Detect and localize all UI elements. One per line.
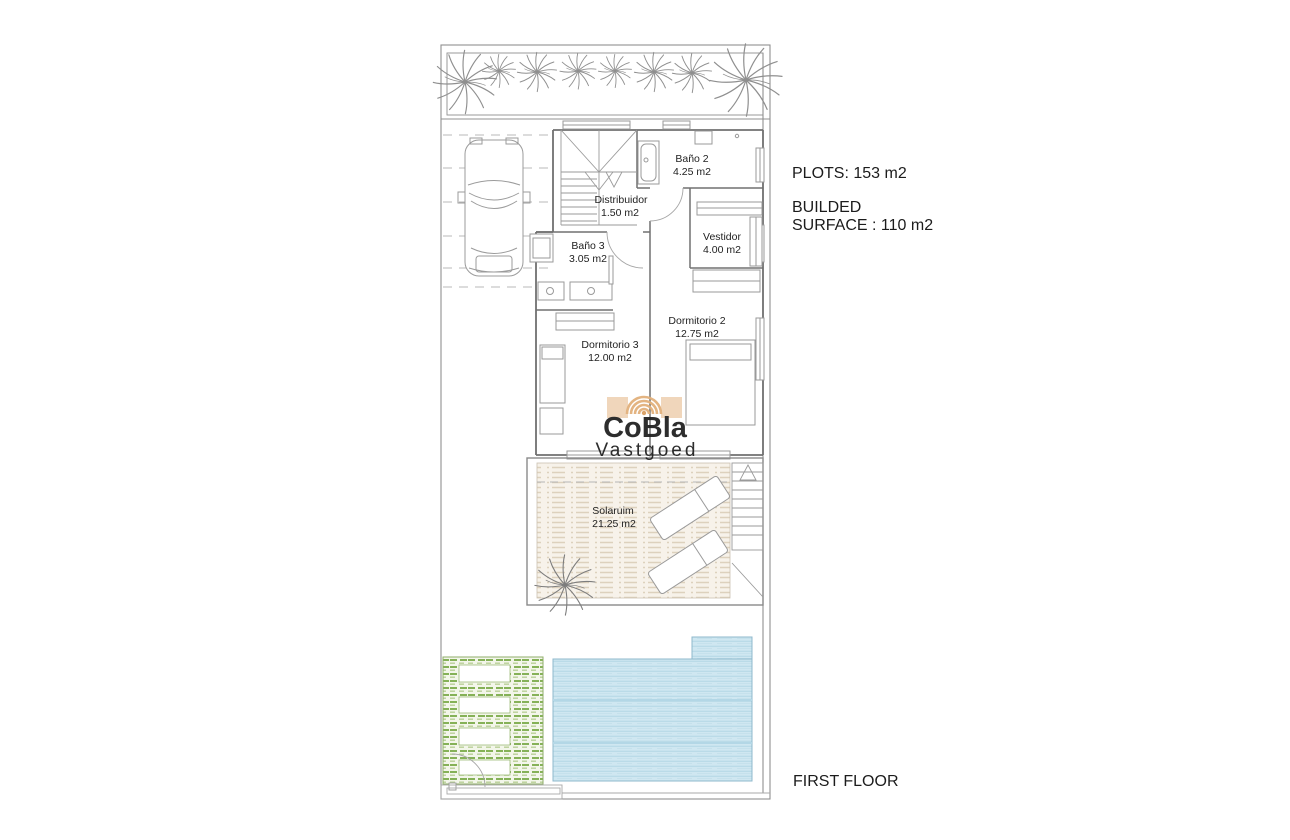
surface-label: SURFACE : 110 m2 <box>792 217 933 234</box>
stair-direction-arrow <box>606 172 622 187</box>
palm-tree-icon <box>433 50 496 113</box>
room-label-bano3: Baño 3 <box>571 240 604 252</box>
garden <box>443 657 543 790</box>
palm-tree-icon <box>517 52 556 91</box>
wood-deck <box>537 463 730 598</box>
door-arc <box>650 188 683 221</box>
sidewalk <box>441 785 770 799</box>
logo-tagline-text: Vastgoed <box>596 440 699 461</box>
car-top-view <box>458 138 530 276</box>
planter <box>459 728 510 745</box>
room-area-bano3: 3.05 m2 <box>569 253 607 265</box>
annotations: PLOTS: 153 m2 BUILDED SURFACE : 110 m2 F… <box>792 165 933 790</box>
exterior-stairs <box>732 463 763 597</box>
room-label-dormitorio2: Dormitorio 2 <box>668 315 725 327</box>
planter <box>459 665 510 682</box>
room-area-dormitorio2: 12.75 m2 <box>675 328 719 340</box>
room-label-vestidor: Vestidor <box>703 231 741 243</box>
palm-tree-icon <box>560 53 596 89</box>
palm-tree-icon <box>482 54 515 87</box>
room-area-bano2: 4.25 m2 <box>673 166 711 178</box>
floor-title: FIRST FLOOR <box>793 773 899 790</box>
solarium-terrace <box>527 458 763 615</box>
palm-tree-icon <box>710 44 782 116</box>
room-label-solarium: Solaruim <box>592 505 634 517</box>
swimming-pool <box>553 637 752 781</box>
builded-label: BUILDED <box>792 199 861 216</box>
palm-tree-icon <box>672 53 711 92</box>
floor-plan-drawing: Baño 2 4.25 m2 Distribuidor 1.50 m2 Vest… <box>0 0 1290 840</box>
room-area-vestidor: 4.00 m2 <box>703 244 741 256</box>
plots-label: PLOTS: 153 m2 <box>792 165 907 182</box>
palm-tree-icon <box>598 54 631 87</box>
room-area-dormitorio3: 12.00 m2 <box>588 352 632 364</box>
floor-plan-page: Baño 2 4.25 m2 Distribuidor 1.50 m2 Vest… <box>0 0 1290 840</box>
room-label-bano2: Baño 2 <box>675 153 708 165</box>
room-area-solarium: 21.25 m2 <box>592 518 636 530</box>
tree-row <box>433 44 782 116</box>
planter <box>459 760 510 775</box>
cobla-logo: CoBla Vastgoed <box>596 397 699 461</box>
bedroom2-furniture <box>686 270 760 425</box>
room-label-distribuidor: Distribuidor <box>594 194 648 206</box>
planter <box>459 697 510 713</box>
pool-main <box>553 659 752 781</box>
room-area-distribuidor: 1.50 m2 <box>601 207 639 219</box>
gate-hinge <box>449 783 456 790</box>
room-label-dormitorio3: Dormitorio 3 <box>581 339 638 351</box>
palm-tree-icon <box>634 52 673 91</box>
stair-direction-arrow <box>740 465 756 480</box>
